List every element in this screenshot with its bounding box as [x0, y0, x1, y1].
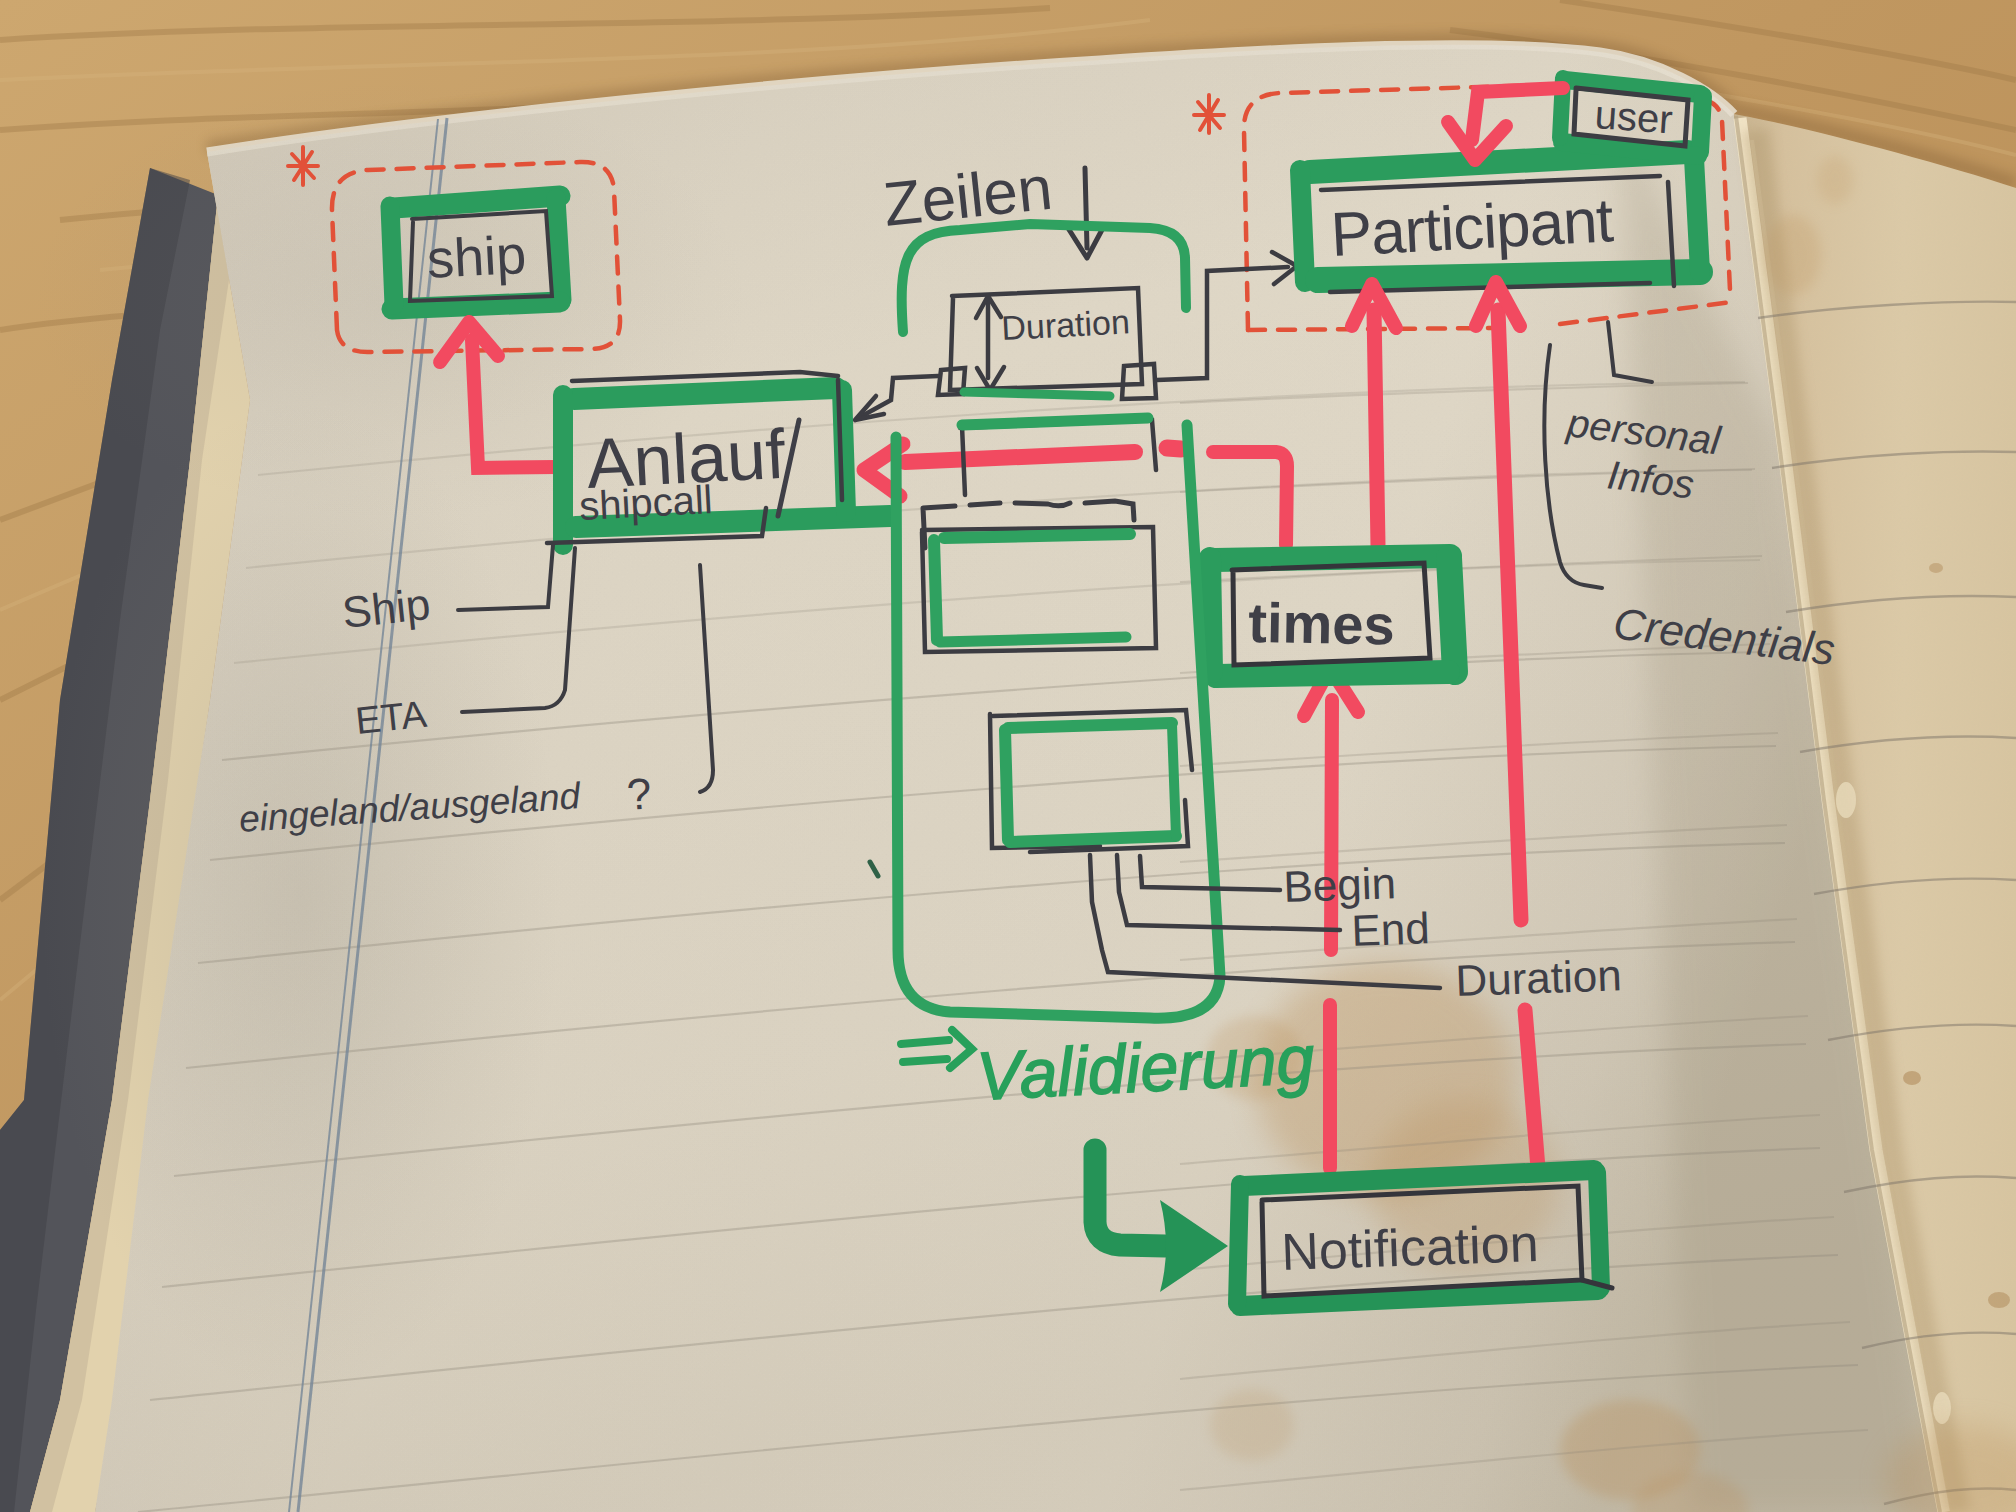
svg-text:shipcall: shipcall — [578, 477, 714, 528]
svg-text:user: user — [1593, 92, 1674, 141]
svg-text:times: times — [1248, 591, 1395, 657]
svg-text:End: End — [1351, 903, 1431, 955]
svg-text:ETA: ETA — [353, 693, 429, 742]
svg-text:Notification: Notification — [1280, 1214, 1539, 1281]
svg-text:Begin: Begin — [1283, 858, 1397, 911]
svg-text:Ship: Ship — [340, 579, 433, 637]
svg-text:?: ? — [625, 768, 653, 819]
svg-text:Duration: Duration — [1455, 950, 1623, 1005]
svg-text:ship: ship — [425, 224, 527, 289]
svg-text:Participant: Participant — [1329, 185, 1615, 269]
svg-text:Duration: Duration — [1000, 302, 1130, 347]
